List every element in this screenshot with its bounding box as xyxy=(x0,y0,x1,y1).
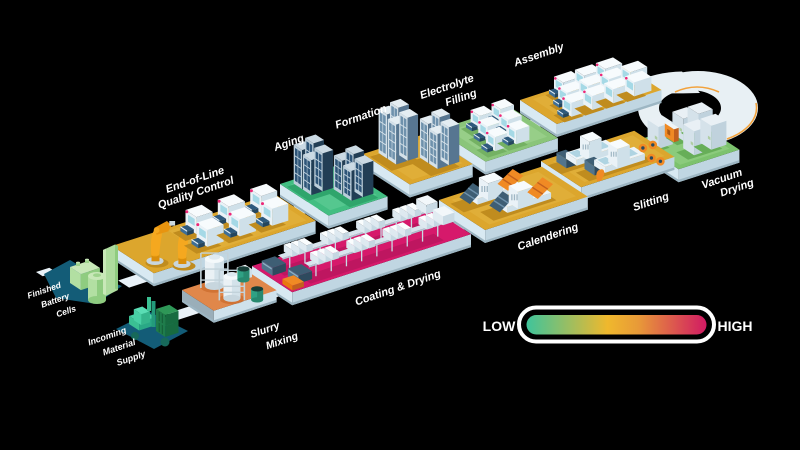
svg-text:LOW: LOW xyxy=(483,318,516,334)
svg-text:HIGH: HIGH xyxy=(718,318,753,334)
